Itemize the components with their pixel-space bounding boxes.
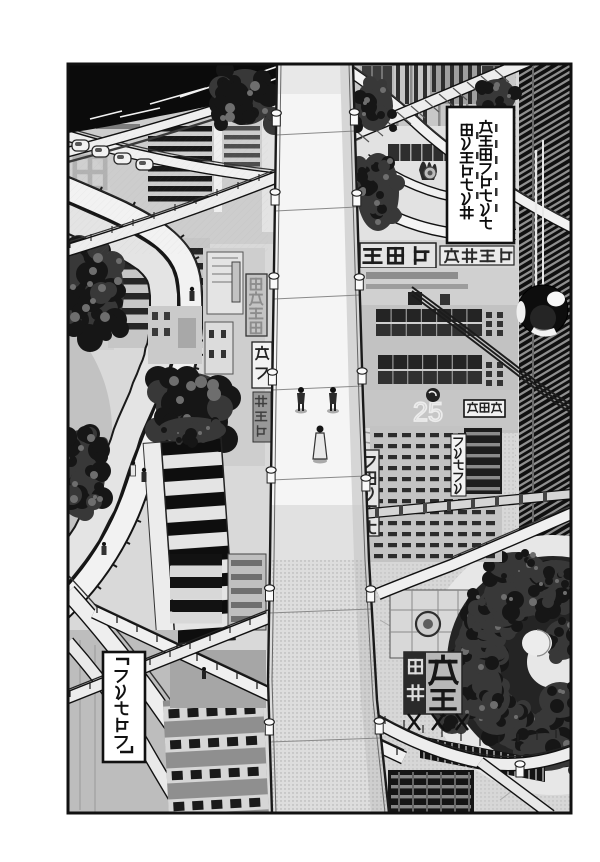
svg-text:25: 25 [413, 397, 443, 427]
